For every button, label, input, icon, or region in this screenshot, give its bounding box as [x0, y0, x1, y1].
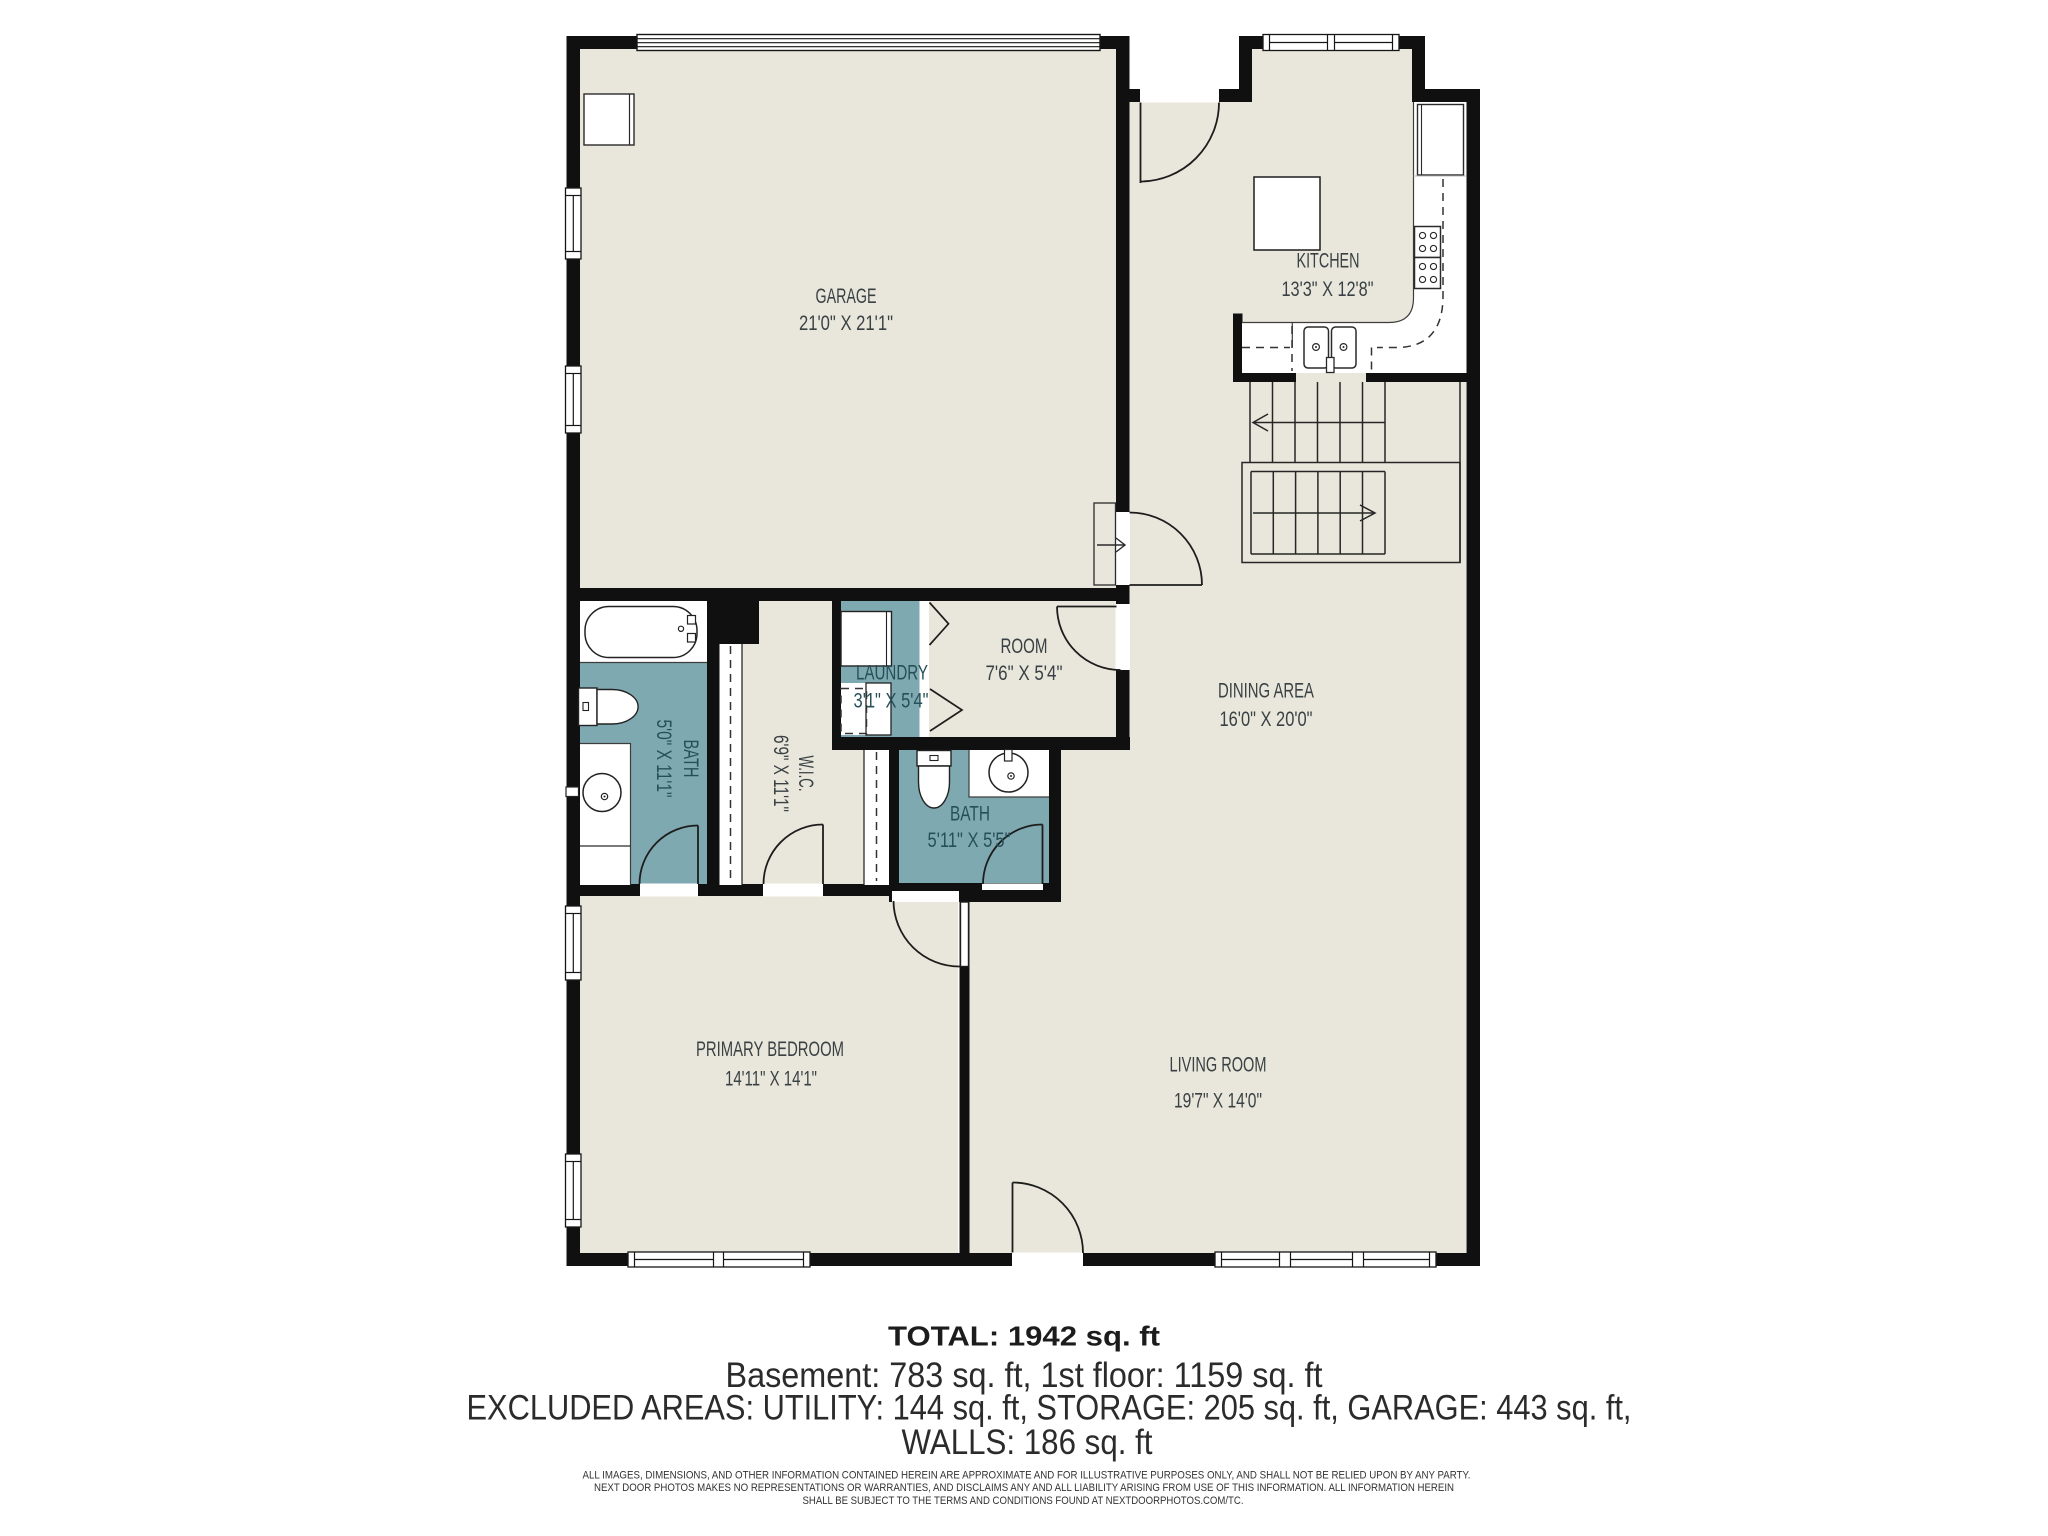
svg-text:16'0" X 20'0": 16'0" X 20'0"	[1220, 708, 1313, 731]
svg-text:ROOM: ROOM	[1001, 635, 1048, 658]
svg-text:GARAGE: GARAGE	[816, 285, 877, 308]
svg-text:SHALL BE SUBJECT TO THE TERMS: SHALL BE SUBJECT TO THE TERMS AND CONDIT…	[803, 1495, 1244, 1507]
svg-text:PRIMARY BEDROOM: PRIMARY BEDROOM	[696, 1038, 844, 1061]
svg-text:21'0" X 21'1": 21'0" X 21'1"	[799, 312, 893, 335]
svg-text:KITCHEN: KITCHEN	[1297, 250, 1360, 273]
svg-text:13'3" X 12'8": 13'3" X 12'8"	[1282, 278, 1374, 301]
svg-text:7'6" X 5'4": 7'6" X 5'4"	[986, 662, 1063, 685]
svg-text:19'7" X 14'0": 19'7" X 14'0"	[1174, 1090, 1262, 1113]
svg-text:LIVING ROOM: LIVING ROOM	[1170, 1054, 1267, 1077]
svg-text:ALL IMAGES, DIMENSIONS, AND OT: ALL IMAGES, DIMENSIONS, AND OTHER INFORM…	[583, 1470, 1471, 1482]
svg-text:LAUNDRY: LAUNDRY	[856, 662, 928, 685]
svg-text:EXCLUDED AREAS: UTILITY: 144 s: EXCLUDED AREAS: UTILITY: 144 sq. ft, STO…	[467, 1389, 1632, 1428]
svg-text:WALLS: 186 sq. ft: WALLS: 186 sq. ft	[902, 1423, 1153, 1462]
svg-text:DINING AREA: DINING AREA	[1218, 680, 1314, 703]
svg-text:14'11" X 14'1": 14'11" X 14'1"	[725, 1068, 817, 1091]
svg-text:6'9" X 11'1": 6'9" X 11'1"	[769, 735, 792, 812]
svg-text:5'11" X 5'5": 5'11" X 5'5"	[928, 829, 1011, 852]
svg-text:TOTAL: 1942 sq. ft: TOTAL: 1942 sq. ft	[888, 1321, 1160, 1352]
svg-text:5'0" X 11'1": 5'0" X 11'1"	[652, 720, 675, 798]
svg-text:NEXT DOOR PHOTOS MAKES NO REPR: NEXT DOOR PHOTOS MAKES NO REPRESENTATION…	[594, 1482, 1454, 1494]
svg-text:W.I.C.: W.I.C.	[794, 756, 817, 792]
svg-text:BATH: BATH	[950, 803, 990, 826]
svg-text:BATH: BATH	[679, 740, 702, 778]
svg-text:3'1" X 5'4": 3'1" X 5'4"	[854, 690, 929, 713]
